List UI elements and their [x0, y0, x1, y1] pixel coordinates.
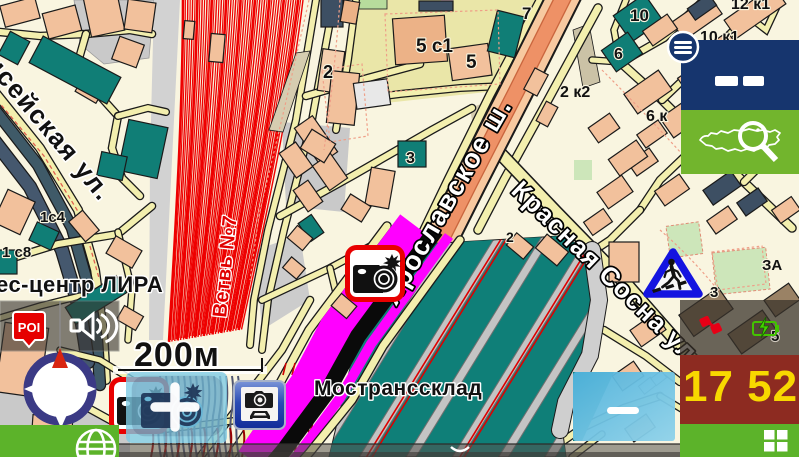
svg-text:10: 10	[630, 6, 649, 25]
svg-text:POI: POI	[18, 320, 40, 335]
svg-text:2: 2	[506, 229, 514, 245]
svg-text:Мостранссклад: Мостранссклад	[314, 377, 482, 400]
svg-text:7: 7	[522, 4, 531, 23]
svg-text:200м: 200м	[134, 336, 220, 374]
svg-text:5: 5	[466, 52, 477, 73]
svg-text:2 к2: 2 к2	[560, 84, 590, 101]
svg-text:3: 3	[710, 284, 718, 301]
svg-text:5 с1: 5 с1	[416, 36, 453, 57]
svg-text:6 к: 6 к	[646, 108, 668, 125]
svg-text:6: 6	[614, 46, 623, 63]
svg-text:2: 2	[323, 62, 333, 82]
svg-text:12 к1: 12 к1	[731, 0, 770, 13]
svg-text:1с4: 1с4	[40, 209, 66, 226]
svg-text:ЗА: ЗА	[762, 257, 782, 274]
svg-text:17 52: 17 52	[683, 362, 798, 411]
svg-text:ес-центр ЛИРА: ес-центр ЛИРА	[0, 272, 163, 297]
svg-text:1 с8: 1 с8	[2, 244, 31, 261]
svg-text:3: 3	[406, 150, 415, 167]
